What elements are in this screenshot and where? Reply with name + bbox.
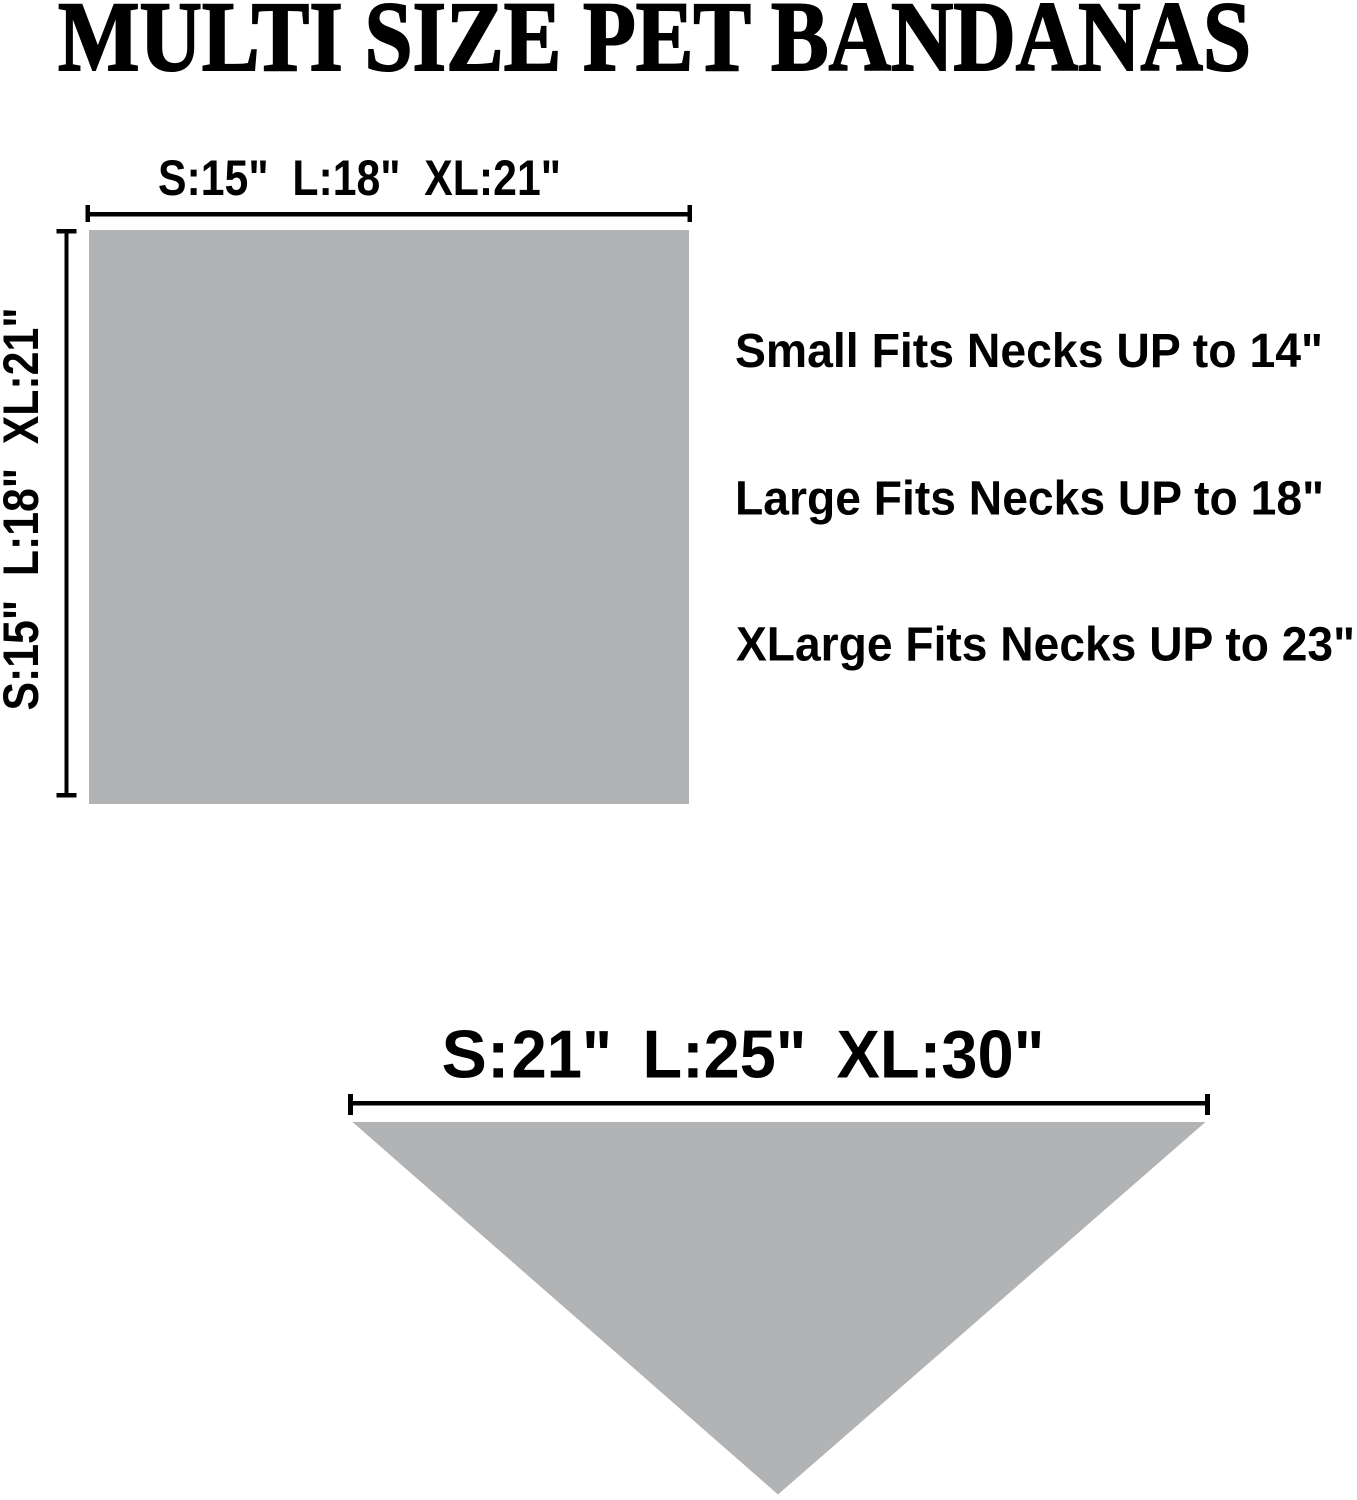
svg-text:XL:30": XL:30" [837, 1017, 1045, 1093]
svg-text:Small Fits Necks UP to 14": Small Fits Necks UP to 14" [735, 325, 1323, 378]
svg-text:S:15" L:18" XL:21": S:15" L:18" XL:21" [158, 150, 561, 206]
svg-text:S:15" L:18" XL:21": S:15" L:18" XL:21" [0, 308, 49, 711]
svg-text:MULTI SIZE PET BANDANAS: MULTI SIZE PET BANDANAS [58, 0, 1251, 92]
svg-text:21": 21" [512, 1017, 613, 1093]
svg-text:L:25": L:25" [643, 1017, 807, 1093]
svg-text:XLarge Fits Necks UP to 23": XLarge Fits Necks UP to 23" [736, 619, 1355, 672]
svg-text:Large Fits Necks UP to 18": Large Fits Necks UP to 18" [735, 473, 1324, 526]
svg-text:S:: S: [442, 1017, 510, 1093]
